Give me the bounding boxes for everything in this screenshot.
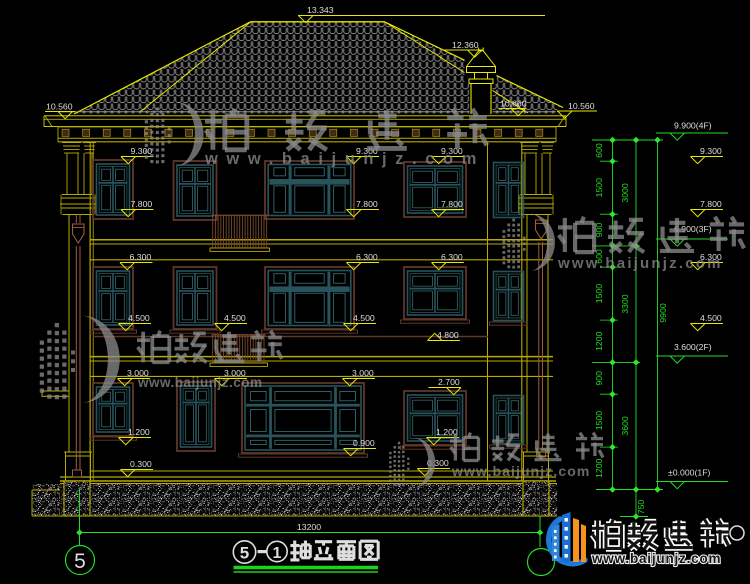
svg-text:10.660: 10.660: [500, 99, 527, 109]
svg-text:9.900(4F): 9.900(4F): [674, 121, 712, 131]
svg-text:3000: 3000: [620, 183, 630, 202]
svg-text:4.500: 4.500: [224, 313, 246, 323]
svg-text:2.700: 2.700: [438, 377, 460, 387]
svg-text:www.baijunjz.com: www.baijunjz.com: [137, 375, 263, 390]
svg-text:www.baijunjz.com: www.baijunjz.com: [451, 463, 590, 479]
svg-text:6.300: 6.300: [441, 252, 463, 262]
svg-text:4.500: 4.500: [128, 313, 150, 323]
svg-text:3.000: 3.000: [352, 368, 374, 378]
svg-text:±0.000(1F): ±0.000(1F): [668, 468, 711, 478]
svg-text:7.800: 7.800: [700, 199, 722, 209]
svg-text:7.800: 7.800: [131, 199, 153, 209]
svg-text:4.500: 4.500: [353, 313, 375, 323]
svg-text:750: 750: [636, 500, 646, 515]
svg-text:www.baijunjz.com: www.baijunjz.com: [557, 255, 723, 272]
svg-text:1500: 1500: [594, 178, 604, 197]
svg-text:10.560: 10.560: [568, 101, 595, 111]
svg-text:1200: 1200: [594, 331, 604, 350]
svg-text:900: 900: [594, 371, 604, 386]
svg-text:6.300: 6.300: [356, 252, 378, 262]
svg-text:5: 5: [240, 544, 249, 563]
svg-text:6.300: 6.300: [130, 252, 152, 262]
svg-text:1: 1: [273, 545, 282, 562]
svg-text:7.800: 7.800: [441, 199, 463, 209]
svg-text:www.baijunjz.com: www.baijunjz.com: [591, 551, 721, 566]
svg-text:600: 600: [594, 143, 604, 158]
svg-text:13.343: 13.343: [307, 5, 334, 15]
svg-text:3600: 3600: [620, 416, 630, 435]
svg-text:9900: 9900: [658, 303, 668, 322]
svg-text:12.360: 12.360: [452, 40, 479, 50]
svg-text:0.300: 0.300: [130, 459, 152, 469]
svg-text:1.200: 1.200: [128, 427, 150, 437]
svg-text:13200: 13200: [297, 522, 321, 532]
svg-text:3300: 3300: [620, 294, 630, 313]
svg-text:1500: 1500: [594, 284, 604, 303]
svg-text:4.500: 4.500: [700, 313, 722, 323]
svg-text:9.300: 9.300: [700, 146, 722, 156]
svg-text:10.560: 10.560: [46, 102, 73, 112]
svg-text:7.800: 7.800: [356, 199, 378, 209]
svg-text:3.600(2F): 3.600(2F): [674, 342, 712, 352]
svg-text:0.900: 0.900: [353, 438, 375, 448]
svg-text:9.300: 9.300: [131, 146, 153, 156]
svg-text:1500: 1500: [594, 411, 604, 430]
svg-text:www.baijunjz.com: www.baijunjz.com: [204, 150, 485, 168]
svg-text:5: 5: [74, 550, 86, 573]
svg-text:1200: 1200: [594, 458, 604, 477]
